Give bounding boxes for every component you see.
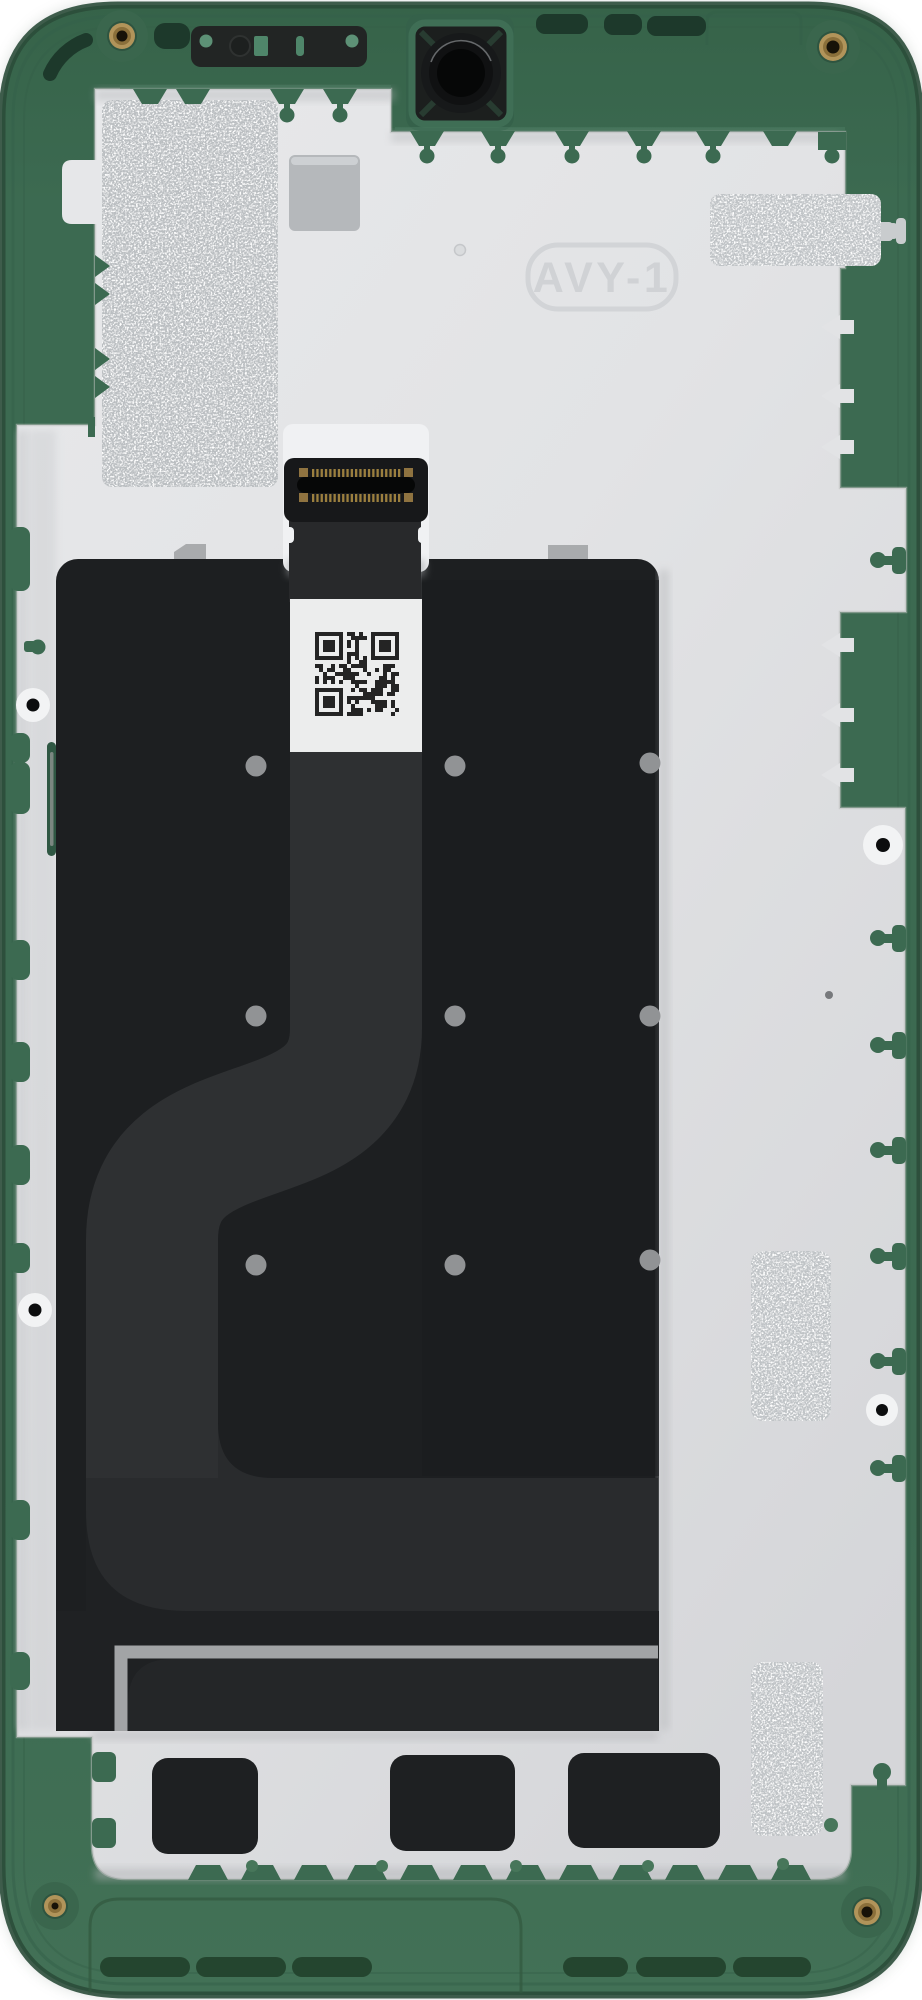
svg-text:AVY-1: AVY-1 [533, 254, 672, 302]
